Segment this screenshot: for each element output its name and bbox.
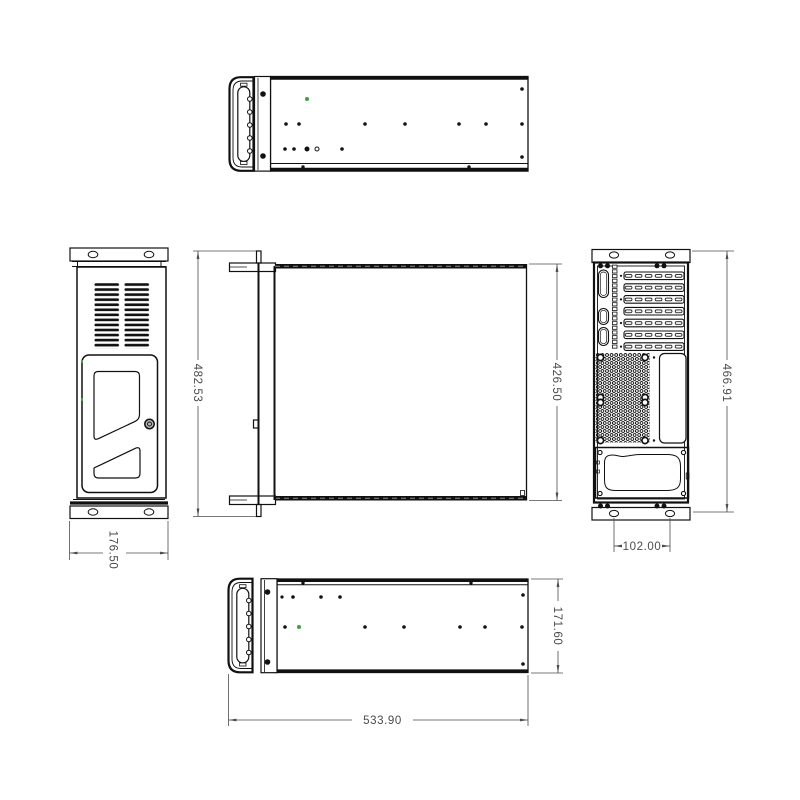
- door-hinge-mark: [81, 398, 83, 401]
- mount-slot-hole: [144, 251, 154, 257]
- blank-panel: [660, 354, 687, 444]
- flange-slot-hole: [609, 510, 618, 516]
- mount-slot-hole: [144, 509, 154, 515]
- slot-cover: [624, 307, 684, 315]
- plate-screw: [260, 153, 266, 159]
- dim-front-width: 176.50: [70, 521, 169, 569]
- mount-slot-hole: [88, 509, 98, 515]
- plate-screw: [265, 589, 271, 595]
- flange-slot-hole: [665, 252, 674, 258]
- dim-hole-spacing: 102.00: [614, 518, 670, 553]
- door-hinge-mark: [81, 360, 83, 363]
- door-lock: [145, 419, 154, 428]
- dim-front-width-label: 176.50: [107, 531, 119, 570]
- dim-overall-depth-label: 482.53: [191, 364, 203, 403]
- dim-side-length: 533.90: [229, 674, 529, 727]
- side-panel-holes: [283, 87, 524, 169]
- plate-screw: [260, 91, 266, 97]
- flange-slot-hole: [609, 252, 618, 258]
- side-panel-holes: [280, 581, 524, 666]
- rear-bottom-flange: [592, 508, 690, 521]
- chassis-body-outline: [271, 77, 529, 172]
- slot-cover: [624, 331, 684, 339]
- front-view: 176.50: [70, 248, 169, 569]
- highlight-hole: [305, 97, 309, 101]
- slot-cover: [624, 343, 684, 351]
- vent-grille: [95, 283, 150, 349]
- dim-overall-depth: 482.53: [191, 251, 256, 517]
- rear-top-flange: [592, 250, 690, 263]
- dim-side-length-label: 533.90: [363, 715, 402, 727]
- dim-side-height-label: 171.60: [551, 607, 563, 646]
- technical-drawing-canvas: 176.50 482.53: [0, 0, 800, 800]
- dim-rear-height-label: 466.91: [720, 364, 732, 403]
- plate-screw: [265, 659, 271, 665]
- flange-slot-hole: [665, 510, 674, 516]
- slot-cover: [624, 319, 684, 327]
- dim-rear-height: 466.91: [692, 251, 734, 512]
- rear-view: 466.91 102.00: [592, 250, 734, 554]
- expansion-slots: [620, 272, 684, 350]
- bottom-ear-tab: [257, 505, 262, 517]
- dim-side-height: 171.60: [531, 579, 563, 673]
- side-view-bottom: 171.60 533.90: [229, 579, 564, 727]
- rack-handle: [229, 579, 253, 673]
- punch-hole-strip: [612, 265, 618, 350]
- io-connectors: [599, 270, 609, 346]
- chassis-drawing: 176.50 482.53: [0, 0, 800, 800]
- dim-body-depth-label: 426.50: [550, 363, 562, 402]
- door-upper-cutout: [94, 372, 140, 440]
- slot-cover: [624, 272, 684, 280]
- slot-cover: [624, 296, 684, 304]
- top-ear-tab: [257, 251, 262, 263]
- chassis-body-outline: [277, 579, 528, 673]
- slot-cover: [624, 284, 684, 292]
- rack-handle: [230, 77, 254, 171]
- psu-cutout: [605, 455, 681, 491]
- dim-hole-spacing-label: 102.00: [623, 541, 662, 553]
- door-lower-cutout: [94, 448, 140, 478]
- corner-notch: [521, 491, 525, 496]
- dim-body-depth: 426.50: [529, 264, 562, 501]
- mount-slot-hole: [88, 251, 98, 257]
- highlight-hole: [297, 625, 301, 629]
- side-view-top: [230, 77, 529, 172]
- plan-view: 482.53 426.50: [191, 251, 562, 517]
